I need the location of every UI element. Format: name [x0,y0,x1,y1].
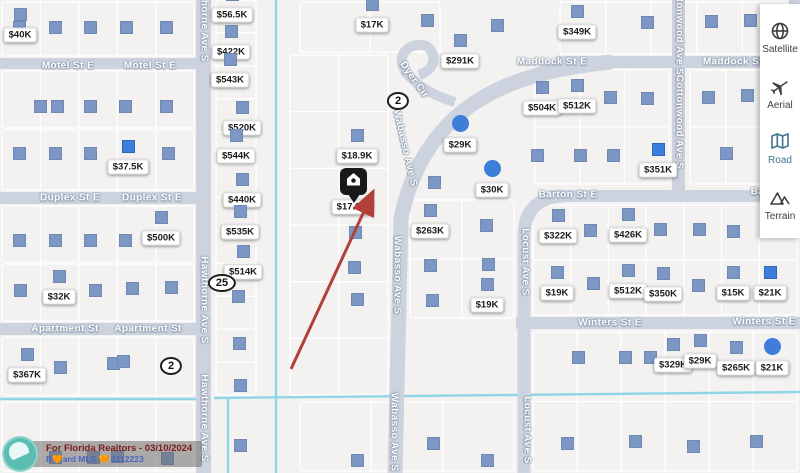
property-square[interactable] [764,266,777,279]
street-label: Maddock St E [517,57,587,68]
property-square[interactable] [21,348,34,361]
street-label: Cottonwood Ave S [674,75,685,170]
property-square[interactable] [424,204,437,217]
price-marker-label[interactable]: $32K [43,290,76,305]
property-square[interactable] [119,100,132,113]
property-square[interactable] [236,101,249,114]
street-label: Locust Ave S [520,228,531,295]
property-square[interactable] [480,219,493,232]
property-square[interactable] [89,284,102,297]
property-square[interactable] [604,91,617,104]
property-square[interactable] [693,223,706,236]
street-label: Locust Ave S [522,396,533,463]
street-label: Hawthorne Ave S [199,256,210,344]
property-square[interactable] [162,147,175,160]
street-label: Duplex St E [122,193,182,204]
property-square[interactable] [49,234,62,247]
street-label: Barton St E [539,190,598,201]
property-square[interactable] [531,149,544,162]
price-marker-label[interactable]: $15K [717,286,750,301]
property-square[interactable] [126,282,139,295]
road [516,317,800,329]
property-square[interactable] [34,100,47,113]
property-circle[interactable] [452,115,469,132]
property-square[interactable] [233,337,246,350]
price-marker-label[interactable]: $37.5K [108,160,149,175]
price-marker-label[interactable]: $18.9K [337,149,378,164]
price-marker-label[interactable]: $544K [217,149,255,164]
property-square[interactable] [629,435,642,448]
property-square[interactable] [232,290,245,303]
street-label: Apartment St [114,324,182,335]
property-square[interactable] [552,209,565,222]
property-square[interactable] [622,264,635,277]
price-marker-label[interactable]: $504K [523,101,561,116]
property-square[interactable] [481,278,494,291]
property-square[interactable] [51,100,64,113]
property-square[interactable] [750,435,763,448]
street-label: Wabasso Ave S [392,236,403,315]
property-square[interactable] [428,176,441,189]
map-type-label: Terrain [765,211,796,222]
property-square[interactable] [351,293,364,306]
property-square[interactable] [705,15,718,28]
street-label: Motel St E [124,61,176,72]
property-square[interactable] [351,454,364,467]
watermark-text: For Florida Realtors - 03/10/2024 B🧡ard … [32,441,202,467]
price-marker-label[interactable]: $29K [444,138,477,153]
property-square[interactable] [641,92,654,105]
property-square[interactable] [454,34,467,47]
property-square[interactable] [224,53,237,66]
watermark-line2: B🧡ard MLS 🧡 1112223 [46,454,192,465]
property-square[interactable] [237,245,250,258]
property-square[interactable] [225,25,238,38]
property-square[interactable] [13,234,26,247]
property-square[interactable] [687,440,700,453]
map-type-label: Road [768,155,792,166]
property-square[interactable] [84,100,97,113]
property-square[interactable] [427,437,440,450]
property-square[interactable] [727,266,740,279]
property-square[interactable] [84,21,97,34]
road [0,323,196,335]
property-square[interactable] [571,79,584,92]
property-circle[interactable] [764,338,781,355]
property-square[interactable] [421,14,434,27]
property-square[interactable] [117,355,130,368]
property-square[interactable] [14,284,27,297]
property-square[interactable] [53,270,66,283]
property-square[interactable] [160,100,173,113]
property-square[interactable] [234,439,247,452]
price-marker-label[interactable]: $19K [541,286,574,301]
property-square[interactable] [348,261,361,274]
road [0,192,196,204]
satellite-globe-icon [769,20,791,42]
property-square[interactable] [122,140,135,153]
property-square[interactable] [165,281,178,294]
street-label: Wabasso Ave S [391,108,419,187]
property-square[interactable] [49,147,62,160]
property-square[interactable] [230,129,243,142]
street-label: Motel St E [42,61,94,72]
price-marker-label[interactable]: $543K [211,73,249,88]
price-marker-label[interactable]: $351K [639,163,677,178]
property-square[interactable] [587,277,600,290]
property-square[interactable] [730,341,743,354]
property-square[interactable] [551,266,564,279]
property-square[interactable] [84,234,97,247]
property-square[interactable] [349,226,362,239]
street-label: Apartment St [31,324,99,335]
house-icon [345,171,362,193]
road-map-icon [769,131,791,153]
property-square[interactable] [584,224,597,237]
property-square[interactable] [234,205,247,218]
property-square[interactable] [226,0,239,1]
map-type-label: Aerial [767,100,793,111]
map-type-aerial[interactable]: Aerial [767,76,793,111]
road [0,58,196,69]
property-square[interactable] [657,267,670,280]
street-label: Cottonwood Ave S [674,0,685,75]
property-square[interactable] [481,454,494,467]
property-square[interactable] [155,211,168,224]
map-type-terrain[interactable]: Terrain [765,187,796,222]
street-label: Duplex St E [40,193,100,204]
price-marker-label[interactable]: $291K [441,54,479,69]
price-marker-label[interactable]: $349K [558,25,596,40]
property-square[interactable] [652,143,665,156]
property-square[interactable] [574,149,587,162]
property-square[interactable] [54,361,67,374]
property-square[interactable] [572,351,585,364]
route-shield: 2 [387,92,409,110]
property-square[interactable] [482,258,495,271]
property-square[interactable] [160,21,173,34]
price-marker-label[interactable]: $21K [756,361,789,376]
price-marker-label[interactable]: $29K [684,354,717,369]
property-square[interactable] [491,19,504,32]
property-square[interactable] [641,16,654,29]
property-square[interactable] [561,437,574,450]
property-square[interactable] [49,21,62,34]
property-square[interactable] [571,5,584,18]
property-square[interactable] [720,147,733,160]
property-square[interactable] [741,89,754,102]
property-square[interactable] [351,129,364,142]
street-label: Winters St E [578,318,642,329]
price-marker-label[interactable]: $512K [609,284,647,299]
property-square[interactable] [366,0,379,11]
property-square[interactable] [702,91,715,104]
price-marker-label[interactable]: $265K [717,361,755,376]
property-square[interactable] [236,173,249,186]
property-square[interactable] [426,294,439,307]
street-label: Wabasso Ave S [389,393,400,472]
street-label: Winters St E [732,317,796,328]
property-square[interactable] [694,334,707,347]
parcel-block [290,55,388,395]
price-marker-label[interactable]: $322K [539,229,577,244]
price-marker-label[interactable]: $21K [754,286,787,301]
price-marker-label[interactable]: $500K [142,231,180,246]
property-square[interactable] [536,81,549,94]
route-shield: 2 [160,357,182,375]
map-view[interactable]: Motel St EMotel St EDuplex St EDuplex St… [0,0,800,473]
price-marker-label[interactable]: $535K [221,225,259,240]
selected-property-pin[interactable] [340,168,367,195]
canal-line [214,392,800,398]
property-square[interactable] [622,208,635,221]
watermark-line1: For Florida Realtors - 03/10/2024 [46,443,192,454]
price-marker-label[interactable]: $426K [609,228,647,243]
property-square[interactable] [14,8,27,21]
map-type-label: Satellite [762,44,798,55]
property-circle[interactable] [484,160,501,177]
price-marker-label[interactable]: $17K [356,18,389,33]
map-type-sidebar: Satellite Aerial Road [760,4,800,238]
property-square[interactable] [120,21,133,34]
route-shield: 25 [208,274,236,292]
price-marker-label[interactable]: $30K [476,183,509,198]
aerial-plane-icon [769,76,791,98]
price-marker-label[interactable]: $367K [8,368,46,383]
property-square[interactable] [119,234,132,247]
price-marker-label[interactable]: $40K [4,28,37,43]
price-marker-label[interactable]: $19K [471,298,504,313]
mls-logo-icon [2,436,38,472]
mls-watermark: For Florida Realtors - 03/10/2024 B🧡ard … [2,436,202,472]
property-square[interactable] [607,149,620,162]
terrain-mountain-icon [769,187,791,209]
property-square[interactable] [619,351,632,364]
street-label: Hawthorne Ave S [199,0,210,62]
price-marker-label[interactable]: $56.5K [212,8,253,23]
parcel-block [2,130,194,190]
road [196,0,211,473]
price-marker-label[interactable]: $512K [558,99,596,114]
map-type-road[interactable]: Road [768,131,792,166]
price-marker-label[interactable]: $263K [411,224,449,239]
property-square[interactable] [667,338,680,351]
property-square[interactable] [744,14,757,27]
property-square[interactable] [692,279,705,292]
price-marker-label[interactable]: $350K [644,287,682,302]
red-arrow [291,194,372,369]
property-square[interactable] [727,225,740,238]
property-square[interactable] [424,259,437,272]
map-type-satellite[interactable]: Satellite [762,20,798,55]
property-square[interactable] [654,223,667,236]
property-square[interactable] [84,147,97,160]
property-square[interactable] [13,147,26,160]
property-square[interactable] [234,379,247,392]
